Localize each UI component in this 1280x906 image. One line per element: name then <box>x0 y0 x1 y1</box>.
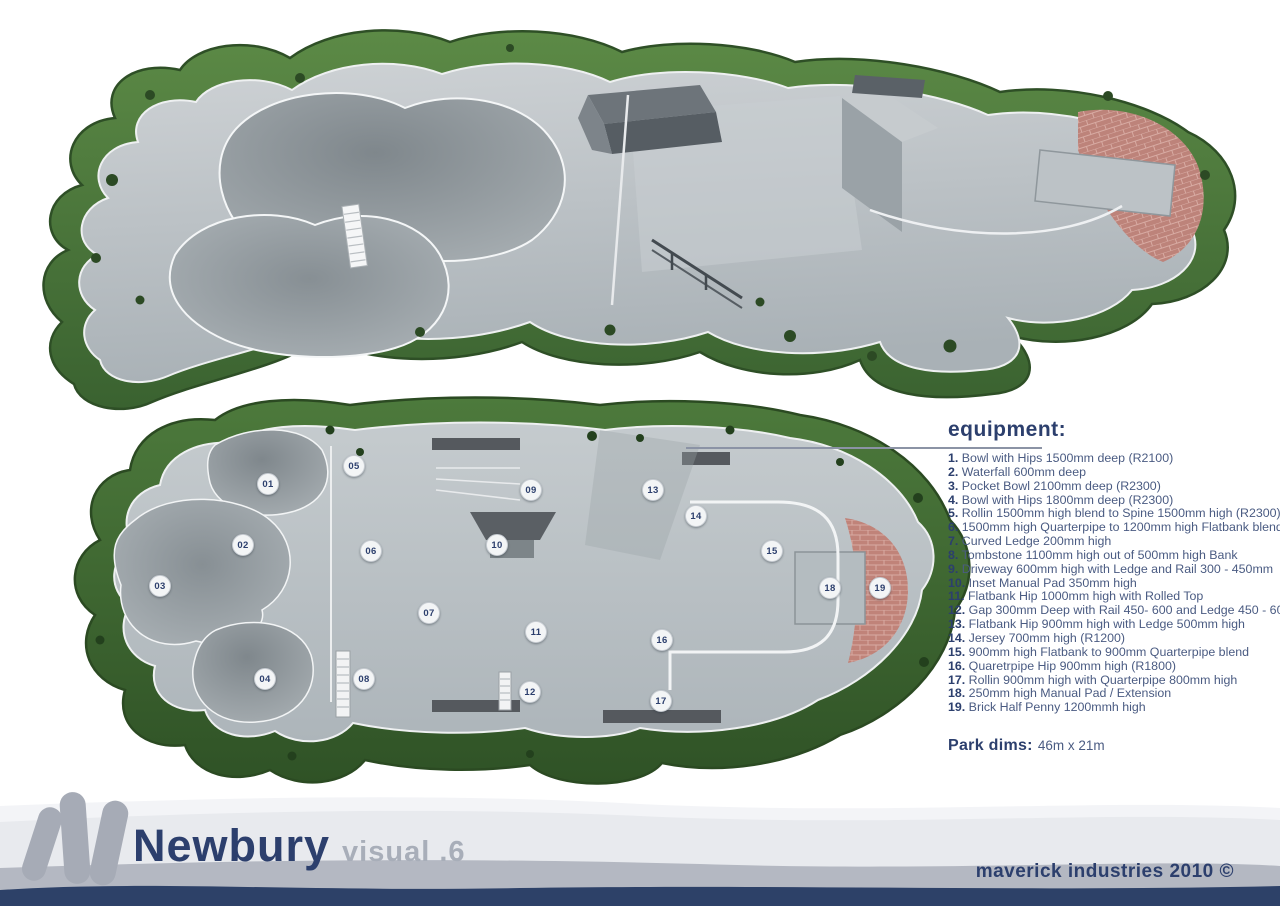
top-3d-render <box>43 30 1235 409</box>
equipment-item: 17. Rollin 900mm high with Quarterpipe 8… <box>948 674 1280 688</box>
equipment-item: 3. Pocket Bowl 2100mm deep (R2300) <box>948 480 1280 494</box>
equipment-item: 19. Brick Half Penny 1200mmh high <box>948 701 1280 715</box>
plan-bowl-04 <box>193 622 313 722</box>
equipment-item: 7. Curved Ledge 200mm high <box>948 535 1280 549</box>
equipment-item: 8. Tombstone 1100mm high out of 500mm hi… <box>948 549 1280 563</box>
brand: Newbury visual .6 <box>133 820 466 872</box>
equipment-panel: equipment: 1. Bowl with Hips 1500mm deep… <box>948 418 1280 715</box>
plan-ladder-08 <box>336 651 350 717</box>
equipment-item: 12. Gap 300mm Deep with Rail 450- 600 an… <box>948 604 1280 618</box>
brand-subtitle: visual .6 <box>342 836 465 869</box>
equipment-item: 16. Quaretrpipe Hip 900mm high (R1800) <box>948 660 1280 674</box>
equipment-item: 14. Jersey 700mm high (R1200) <box>948 632 1280 646</box>
credit-text: maverick industries 2010 © <box>976 861 1234 883</box>
equipment-item: 5. Rollin 1500mm high blend to Spine 150… <box>948 507 1280 521</box>
equipment-item: 9. Driveway 600mm high with Ledge and Ra… <box>948 563 1280 577</box>
plan-view-render <box>75 398 970 784</box>
park-dims-value: 46m x 21m <box>1038 738 1105 753</box>
equipment-item: 6. 1500mm high Quarterpipe to 1200mm hig… <box>948 521 1280 535</box>
top-spine-funbox <box>578 85 722 154</box>
park-dims-label: Park dims: <box>948 737 1033 754</box>
brand-title: Newbury <box>133 820 330 872</box>
equipment-item: 10. Inset Manual Pad 350mm high <box>948 577 1280 591</box>
poster-canvas: equipment: 1. Bowl with Hips 1500mm deep… <box>0 0 1280 906</box>
plan-manual-pad-18 <box>795 552 865 624</box>
equipment-item: 4. Bowl with Hips 1800mm deep (R2300) <box>948 494 1280 508</box>
equipment-item: 18. 250mm high Manual Pad / Extension <box>948 687 1280 701</box>
plan-ladder-12 <box>499 672 511 710</box>
equipment-item: 1. Bowl with Hips 1500mm deep (R2100) <box>948 452 1280 466</box>
equipment-item: 2. Waterfall 600mm deep <box>948 466 1280 480</box>
footer-band-navy <box>0 886 1280 906</box>
equipment-item: 13. Flatbank Hip 900mm high with Ledge 5… <box>948 618 1280 632</box>
equipment-item: 11. Flatbank Hip 1000mm high with Rolled… <box>948 590 1280 604</box>
equipment-heading: equipment: <box>948 418 1280 442</box>
equipment-list: 1. Bowl with Hips 1500mm deep (R2100)2. … <box>948 452 1280 715</box>
park-dims: Park dims:46m x 21m <box>948 737 1105 755</box>
equipment-item: 15. 900mm high Flatbank to 900mm Quarter… <box>948 646 1280 660</box>
